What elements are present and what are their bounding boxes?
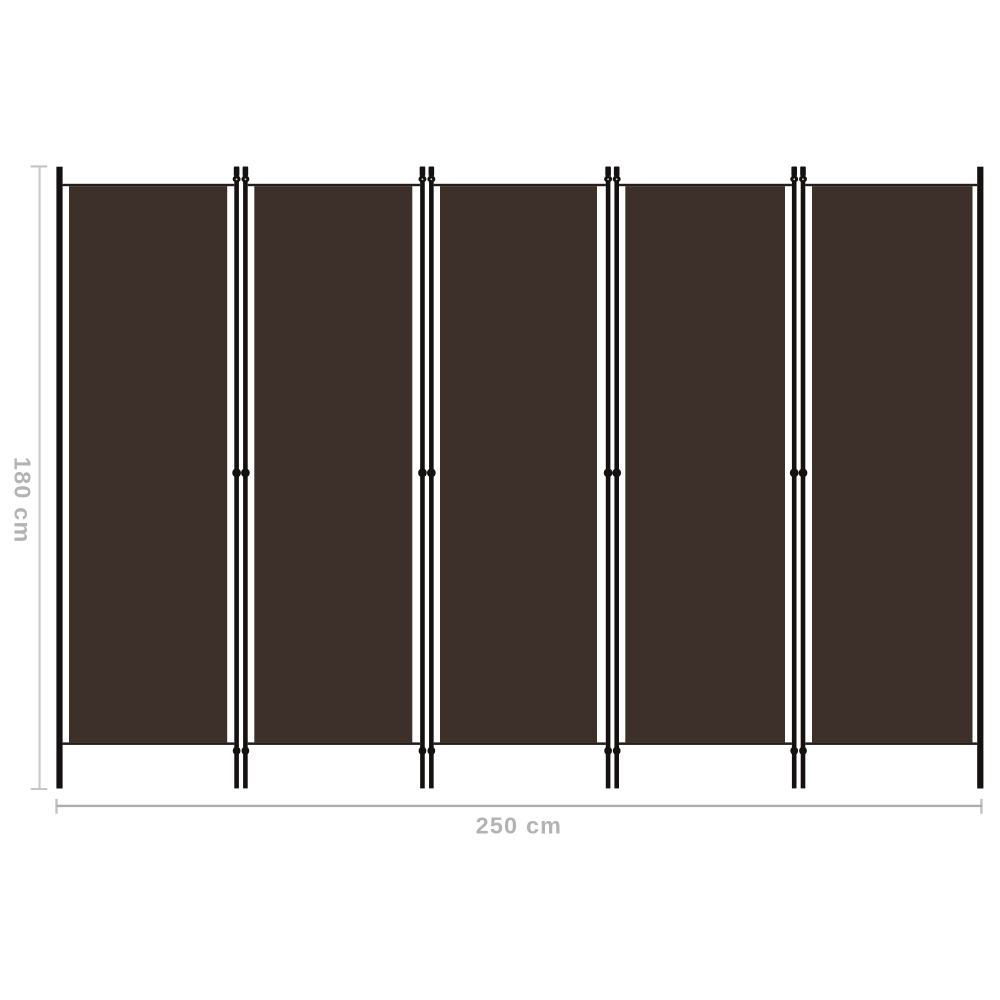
svg-text:180 cm: 180 cm [9, 457, 35, 544]
svg-text:250 cm: 250 cm [476, 813, 563, 839]
